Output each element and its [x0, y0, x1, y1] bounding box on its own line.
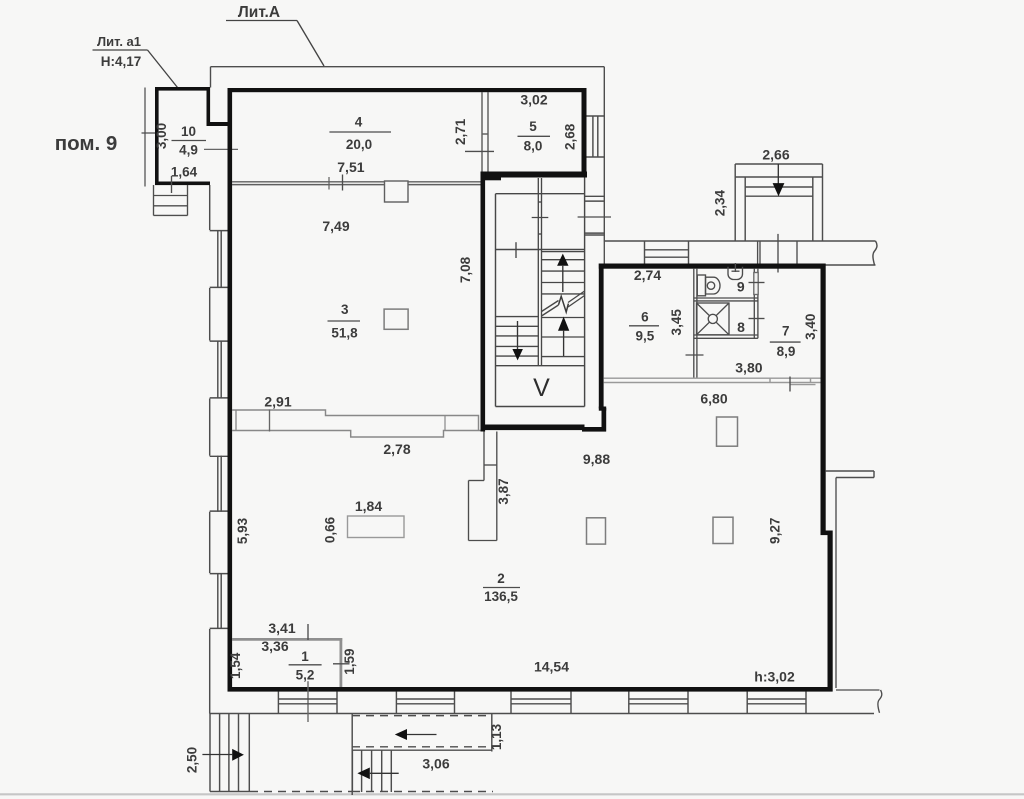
svg-text:3,06: 3,06: [422, 756, 449, 772]
svg-text:1,54: 1,54: [228, 652, 243, 679]
svg-text:9: 9: [737, 279, 745, 295]
svg-text:1,59: 1,59: [342, 648, 357, 674]
svg-text:1,84: 1,84: [355, 498, 382, 514]
svg-text:0,66: 0,66: [323, 516, 338, 543]
svg-text:2,78: 2,78: [383, 441, 410, 457]
svg-text:3,40: 3,40: [803, 314, 818, 340]
svg-text:Лит.А: Лит.А: [238, 4, 280, 21]
svg-text:14,54: 14,54: [534, 659, 569, 675]
svg-text:3,87: 3,87: [496, 478, 511, 504]
svg-text:6: 6: [641, 310, 649, 325]
svg-text:2,68: 2,68: [562, 123, 577, 150]
svg-text:5: 5: [529, 119, 537, 134]
svg-text:3: 3: [341, 302, 349, 317]
svg-text:7: 7: [782, 324, 790, 339]
svg-text:Лит. а1: Лит. а1: [97, 34, 141, 49]
svg-text:пом. 9: пом. 9: [55, 132, 118, 155]
svg-text:4,9: 4,9: [179, 143, 198, 158]
svg-text:V: V: [533, 374, 550, 402]
svg-text:9,5: 9,5: [636, 329, 655, 344]
svg-text:2,74: 2,74: [634, 267, 661, 283]
svg-text:51,8: 51,8: [331, 326, 358, 341]
svg-text:3,02: 3,02: [520, 92, 547, 108]
svg-text:9,27: 9,27: [768, 518, 783, 544]
svg-text:2: 2: [497, 571, 505, 586]
svg-text:3,41: 3,41: [268, 620, 295, 636]
svg-text:Н:4,17: Н:4,17: [101, 54, 142, 69]
svg-text:1,64: 1,64: [171, 165, 198, 180]
svg-text:136,5: 136,5: [484, 589, 518, 604]
svg-text:5,2: 5,2: [296, 668, 315, 683]
svg-text:7,51: 7,51: [337, 159, 364, 175]
svg-text:2,66: 2,66: [762, 147, 789, 163]
svg-text:9,88: 9,88: [583, 451, 610, 467]
svg-text:7,08: 7,08: [458, 256, 473, 283]
svg-text:6,80: 6,80: [700, 391, 727, 407]
svg-text:1: 1: [301, 649, 309, 664]
svg-text:3,00: 3,00: [154, 123, 169, 149]
svg-text:20,0: 20,0: [346, 137, 372, 152]
svg-text:8,0: 8,0: [524, 139, 543, 154]
svg-text:8,9: 8,9: [777, 344, 796, 359]
svg-text:8: 8: [737, 319, 745, 335]
svg-text:2,91: 2,91: [264, 394, 291, 410]
svg-text:3,45: 3,45: [669, 309, 684, 336]
svg-text:2,50: 2,50: [185, 747, 200, 773]
svg-text:5,93: 5,93: [235, 517, 250, 544]
svg-text:3,36: 3,36: [261, 638, 288, 654]
svg-text:h:3,02: h:3,02: [754, 669, 795, 685]
svg-text:7,49: 7,49: [322, 218, 349, 234]
svg-text:1,13: 1,13: [489, 723, 504, 750]
svg-text:4: 4: [355, 115, 363, 130]
svg-text:2,34: 2,34: [713, 189, 728, 216]
svg-text:10: 10: [181, 124, 196, 139]
svg-text:3,80: 3,80: [735, 360, 762, 376]
svg-text:2,71: 2,71: [453, 118, 468, 145]
